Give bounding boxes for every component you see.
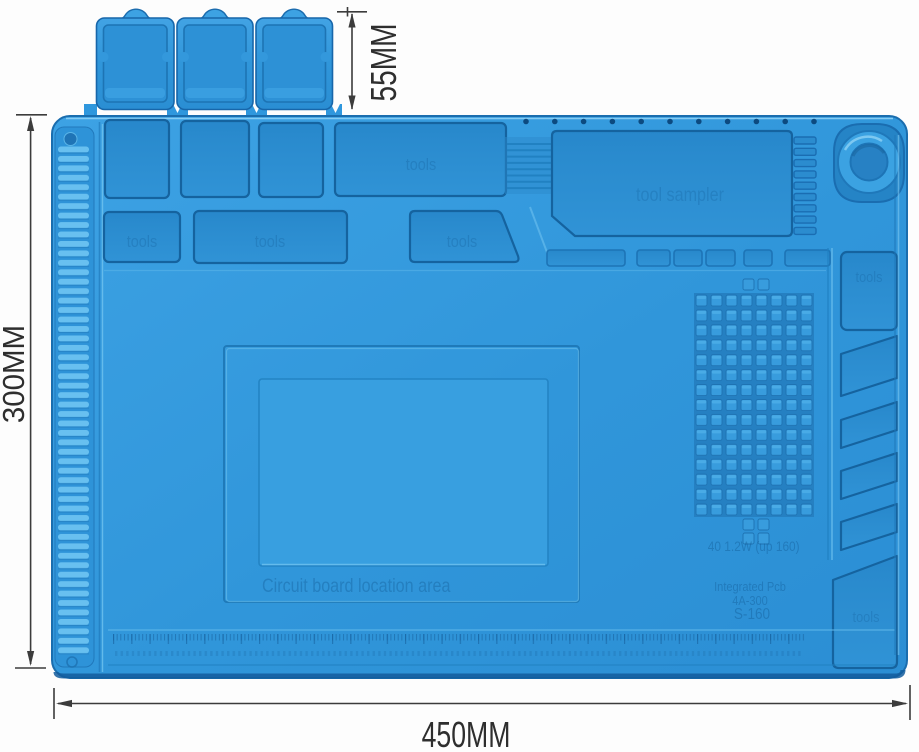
svg-text:tools: tools xyxy=(853,608,880,625)
svg-text:450MM: 450MM xyxy=(422,714,511,752)
svg-text:S-160: S-160 xyxy=(734,606,770,623)
svg-text:tools: tools xyxy=(406,156,437,174)
svg-text:tools: tools xyxy=(856,268,883,285)
svg-text:tools: tools xyxy=(447,233,478,251)
svg-text:tool sampler: tool sampler xyxy=(636,184,724,206)
svg-text:55MM: 55MM xyxy=(364,24,404,102)
svg-text:Integrated Pcb: Integrated Pcb xyxy=(714,579,786,594)
svg-text:tools: tools xyxy=(255,233,286,251)
svg-text:Circuit board location area: Circuit board location area xyxy=(262,575,451,597)
svg-text:40 1.2W (up 160): 40 1.2W (up 160) xyxy=(708,538,800,554)
svg-text:300MM: 300MM xyxy=(0,325,31,423)
svg-text:tools: tools xyxy=(127,233,158,251)
